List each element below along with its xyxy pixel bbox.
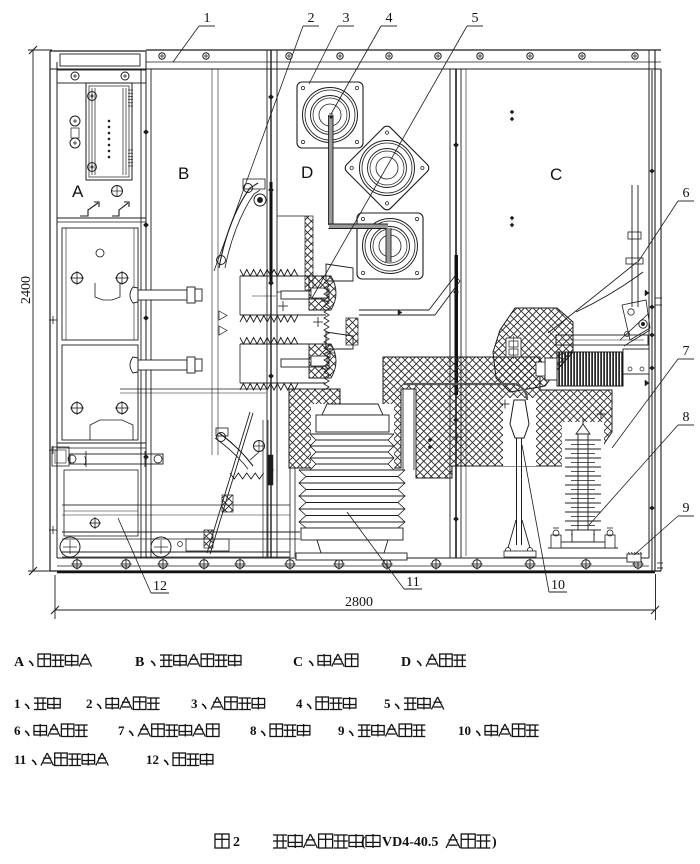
svg-text:8: 8 [250, 723, 257, 738]
svg-text:3: 3 [343, 11, 350, 26]
svg-text:2800: 2800 [345, 595, 373, 610]
svg-text:6: 6 [683, 186, 690, 201]
svg-text:4: 4 [296, 696, 303, 711]
svg-text:B: B [178, 164, 189, 183]
svg-text:10: 10 [458, 723, 471, 738]
svg-text:2: 2 [86, 696, 93, 711]
svg-text:3: 3 [191, 696, 198, 711]
svg-text:C: C [550, 165, 562, 184]
svg-text:}: } [84, 455, 87, 465]
svg-text:12: 12 [153, 579, 167, 594]
svg-text:A: A [72, 182, 84, 201]
svg-text:9: 9 [683, 501, 690, 516]
svg-text:(: ( [361, 835, 366, 850]
svg-text:6: 6 [14, 723, 21, 738]
svg-text:2400: 2400 [19, 276, 34, 304]
svg-text:A: A [14, 655, 25, 670]
svg-text:D: D [401, 655, 411, 670]
svg-text:1: 1 [204, 11, 211, 26]
svg-text:10: 10 [551, 578, 565, 593]
svg-text:11: 11 [14, 752, 26, 767]
svg-text:D: D [301, 163, 313, 182]
svg-text:2: 2 [308, 11, 315, 26]
svg-text:7: 7 [118, 723, 125, 738]
svg-text:VD4-40.5: VD4-40.5 [382, 835, 438, 850]
svg-text:7: 7 [683, 344, 690, 359]
svg-text:5: 5 [384, 696, 391, 711]
svg-text:B: B [135, 655, 144, 670]
svg-text:4: 4 [386, 11, 393, 26]
svg-text:5: 5 [472, 11, 479, 26]
svg-text:): ) [492, 835, 497, 850]
svg-text:12: 12 [146, 752, 159, 767]
svg-text:C: C [293, 655, 303, 670]
svg-text:9: 9 [338, 723, 345, 738]
svg-text:2: 2 [233, 835, 240, 850]
svg-text:11: 11 [406, 575, 419, 590]
svg-text:1: 1 [14, 696, 21, 711]
svg-text:8: 8 [683, 410, 690, 425]
